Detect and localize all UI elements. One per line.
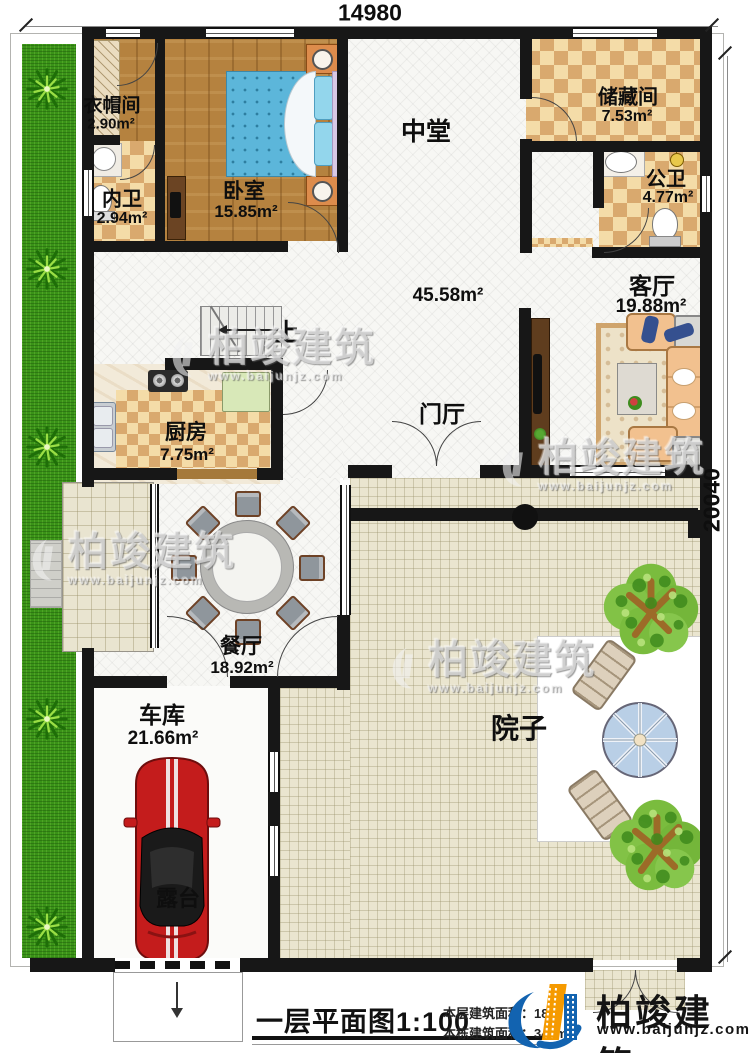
window — [106, 27, 140, 39]
window — [700, 176, 712, 212]
fern-plant-icon — [24, 246, 70, 292]
stone-path — [30, 540, 62, 608]
lamp-icon — [312, 181, 333, 202]
bath-threshold — [532, 238, 593, 247]
fridge — [222, 372, 270, 412]
room-label-storage: 储藏间 — [598, 81, 658, 110]
room-label-courtyard: 院子 — [491, 707, 547, 747]
wall-garage-east — [268, 688, 280, 958]
room-label-hall: 中堂 — [401, 112, 451, 148]
dining-chair — [235, 491, 261, 517]
driveway-arrow — [176, 982, 178, 1010]
room-area-inner-bath: 2.94m² — [97, 210, 148, 228]
patio-umbrella-icon — [600, 700, 680, 780]
room-label-cloakroom: 衣帽间 — [83, 91, 140, 118]
garage-door-dashed — [115, 961, 240, 969]
wall-bedroom-hall — [337, 39, 348, 252]
room-area-bedroom: 15.85m² — [214, 202, 277, 222]
fern-plant-icon — [24, 904, 70, 950]
porch-column-icon — [512, 504, 538, 530]
sink-bowl — [93, 406, 113, 426]
window — [206, 27, 294, 39]
room-label-terrace: 露台 — [156, 881, 200, 913]
car — [122, 756, 222, 964]
wall-kitchen-east — [271, 370, 283, 480]
window-dining-east — [340, 485, 351, 615]
table-flowers-icon — [628, 396, 642, 410]
sink-icon — [605, 151, 637, 173]
dimension-line-right — [727, 56, 728, 962]
plant-icon — [534, 428, 546, 440]
plan-title-text: 一层平面图 — [256, 1007, 396, 1037]
sofa-pillow — [672, 402, 696, 420]
stairs-direction-arrow — [226, 329, 278, 331]
room-area-cloakroom: 2.90m² — [87, 116, 135, 133]
room-area-dining: 18.92m² — [210, 658, 273, 678]
room-area-storage: 7.53m² — [602, 108, 653, 126]
window-deck-glass — [150, 484, 159, 648]
window-garage — [268, 752, 280, 792]
brand-logo-icon — [500, 982, 592, 1052]
driveway — [113, 972, 243, 1042]
dining-chair — [171, 555, 197, 581]
window — [573, 27, 657, 39]
tv-icon — [533, 354, 542, 414]
wall-storage-west-lower — [520, 139, 532, 253]
room-area-garage: 21.66m² — [128, 728, 199, 750]
window-living-south — [570, 465, 665, 478]
room-area-hall: 45.58m² — [413, 285, 484, 307]
stairs-up-label: 上 — [274, 313, 299, 349]
driveway-arrowhead-icon — [171, 1008, 183, 1018]
wall-foyer-south-left — [348, 465, 392, 478]
window-garage — [268, 826, 280, 876]
bed-pillow — [314, 76, 334, 120]
wall-front-courtyard — [350, 958, 593, 972]
wall-exterior-left-lower — [82, 648, 94, 972]
bed-pillow — [314, 122, 334, 166]
sink-bowl — [93, 428, 113, 448]
stairs — [200, 306, 282, 356]
room-area-living: 19.88m² — [616, 296, 687, 318]
wall-front-right — [677, 958, 712, 972]
room-label-dining: 餐厅 — [220, 630, 262, 660]
burner-icon — [153, 374, 166, 387]
room-label-kitchen: 厨房 — [165, 416, 207, 446]
window — [82, 170, 94, 216]
wall-cloak-bath — [88, 135, 120, 145]
room-area-public-bath: 4.77m² — [643, 189, 694, 207]
sofa-seat — [628, 426, 678, 462]
wall-cloak-bedroom — [155, 39, 165, 241]
wall-front-mid — [240, 958, 350, 972]
tree-icon — [592, 552, 710, 670]
room-label-garage: 车库 — [139, 696, 185, 730]
room-label-bedroom: 卧室 — [223, 175, 265, 205]
fern-plant-icon — [24, 424, 70, 470]
burner-icon — [171, 374, 184, 387]
room-label-public-bath: 公卫 — [646, 163, 686, 192]
brand-name: 柏竣建筑 — [596, 984, 750, 1053]
wall-foyer-south-right — [480, 465, 519, 478]
side-table — [672, 436, 702, 466]
wall-kitchen-north — [165, 358, 283, 370]
dimension-width: 14980 — [338, 0, 402, 27]
kitchen-threshold — [177, 469, 257, 479]
tree-icon — [598, 788, 716, 906]
wall-kitchen-south-left — [82, 468, 177, 480]
side-deck — [62, 482, 154, 652]
dining-table-top — [212, 532, 282, 602]
room-label-inner-bath: 内卫 — [102, 183, 142, 212]
courtyard-strip — [280, 688, 350, 960]
toilet-base — [649, 236, 681, 247]
wall-front-left — [30, 958, 115, 972]
fern-plant-icon — [24, 66, 70, 112]
wall-living-west — [519, 308, 531, 468]
brand-website: www.baijunjz.com — [597, 1021, 750, 1038]
wall-kitchen-south-right — [257, 468, 283, 480]
plan-title: 一层平面图1:100 — [256, 1000, 470, 1039]
sofa-pillow — [672, 368, 696, 386]
tv-icon — [170, 192, 181, 218]
lamp-icon — [312, 49, 333, 70]
wall-garage-north-left — [82, 676, 167, 688]
floor-plan-canvas: 14980 20040 上 — [0, 0, 750, 1053]
room-area-kitchen: 7.75m² — [160, 445, 214, 465]
dimension-height: 20040 — [699, 468, 726, 532]
stairs-arrowhead-icon — [218, 325, 227, 335]
dim-tick-icon — [19, 18, 33, 32]
wall-storage-south — [532, 141, 712, 152]
wall-storage-west-upper — [520, 39, 532, 99]
fern-plant-icon — [24, 696, 70, 742]
dim-tick-icon — [705, 18, 719, 32]
wall-bath-west — [593, 152, 604, 208]
room-label-foyer: 门厅 — [419, 395, 465, 429]
wall-bedroom-south — [88, 241, 288, 252]
sink-icon — [92, 147, 116, 171]
dining-chair — [299, 555, 325, 581]
